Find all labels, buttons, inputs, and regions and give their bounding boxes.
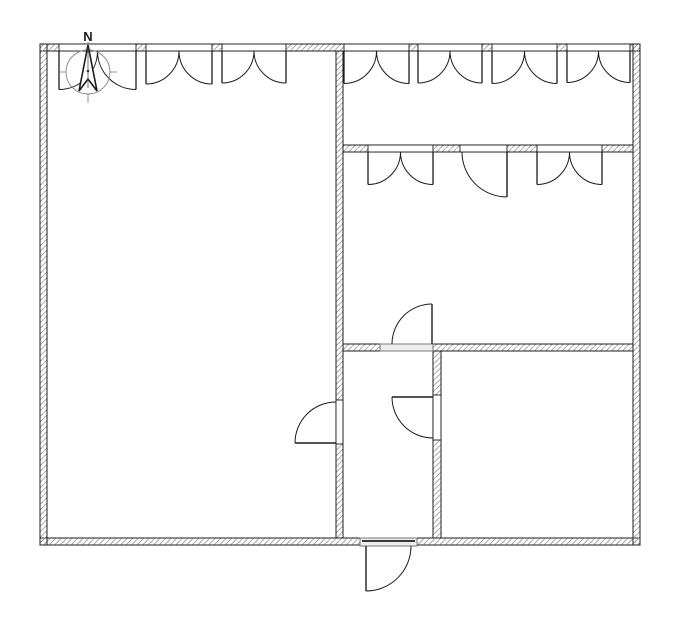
- window-frame: [344, 44, 409, 51]
- window-frame: [567, 44, 630, 51]
- window-swing-arc: [418, 51, 450, 83]
- floor-plan: N: [0, 0, 699, 617]
- window-swing-arc: [492, 51, 525, 84]
- wall-interior-main: [336, 51, 343, 538]
- opening-small-room-east: [433, 395, 441, 440]
- door-corridor-swing-arc: [462, 152, 507, 197]
- window-swing-arc: [146, 51, 179, 84]
- door-small-room-west-swing-arc: [295, 402, 336, 443]
- wall-left: [40, 44, 47, 545]
- window-frame: [146, 44, 212, 51]
- window-swing-arc: [344, 51, 377, 84]
- door-small-room-east-swing-arc: [392, 397, 433, 438]
- window-frame: [537, 145, 602, 152]
- wall-bottom: [40, 538, 640, 545]
- window-swing-arc: [525, 51, 558, 84]
- window-swing-arc: [567, 51, 599, 83]
- floor-plan-svg: N: [0, 0, 699, 617]
- wall-right: [633, 44, 640, 545]
- thresholds-layer: [360, 344, 433, 546]
- window-swings-layer: [59, 51, 630, 185]
- door-upper-room-swing-arc: [392, 304, 432, 344]
- window-frame: [492, 44, 557, 51]
- door-openings-layer: [336, 145, 507, 444]
- window-swing-arc: [537, 152, 570, 185]
- door-swings-layer: [295, 152, 507, 591]
- north-label: N: [83, 29, 92, 44]
- window-swing-arc: [254, 51, 286, 83]
- window-swing-arc: [179, 51, 212, 84]
- window-swing-arc: [599, 51, 631, 83]
- north-compass: N: [59, 29, 117, 103]
- window-frame: [222, 44, 286, 51]
- compass-center-dot: [87, 70, 90, 73]
- window-swing-arc: [377, 51, 410, 84]
- threshold-divider-door: [380, 344, 433, 351]
- opening-corridor-door: [460, 145, 507, 152]
- window-frame: [59, 44, 136, 51]
- window-frame: [368, 145, 433, 152]
- window-swing-arc: [450, 51, 482, 83]
- window-swing-arc: [401, 152, 434, 185]
- walls-layer: [40, 44, 640, 545]
- window-swing-arc: [368, 152, 401, 185]
- window-swing-arc: [222, 51, 254, 83]
- door-entrance-swing-arc: [366, 546, 411, 591]
- window-swing-arc: [570, 152, 603, 185]
- opening-small-room-west: [336, 400, 343, 444]
- window-frame: [418, 44, 482, 51]
- wall-small-room-east: [433, 351, 441, 538]
